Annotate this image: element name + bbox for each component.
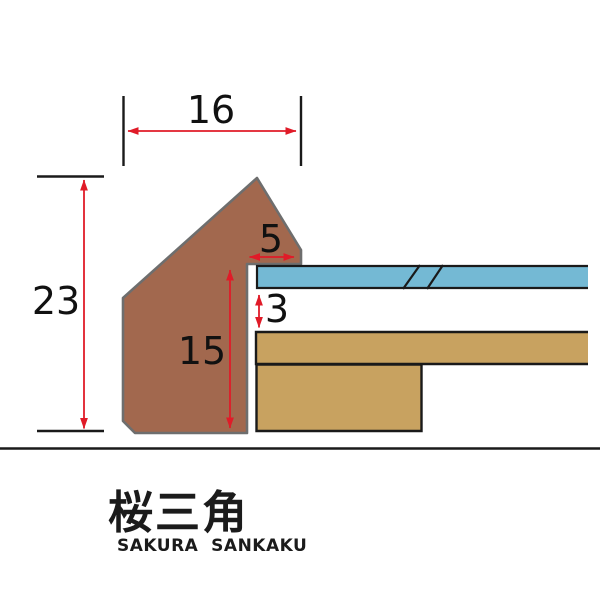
dim16-label: 16: [187, 88, 235, 132]
product-title-kanji: 桜三角: [108, 476, 249, 541]
glass-panel: [257, 266, 588, 288]
dim23-label: 23: [32, 279, 80, 323]
dim5-label: 5: [259, 217, 283, 261]
backing-board-lower: [257, 365, 422, 432]
dim15-label: 15: [178, 329, 226, 373]
product-title-romaji: SAKURA SANKAKU: [117, 536, 307, 556]
cross-section-diagram: 16 23 5 15 3: [0, 0, 600, 460]
frame-spec-image: 16 23 5 15 3 桜三角 SAKURA SANKAKU: [0, 0, 600, 600]
backing-board-upper: [256, 332, 588, 364]
dim3-label: 3: [265, 287, 289, 331]
